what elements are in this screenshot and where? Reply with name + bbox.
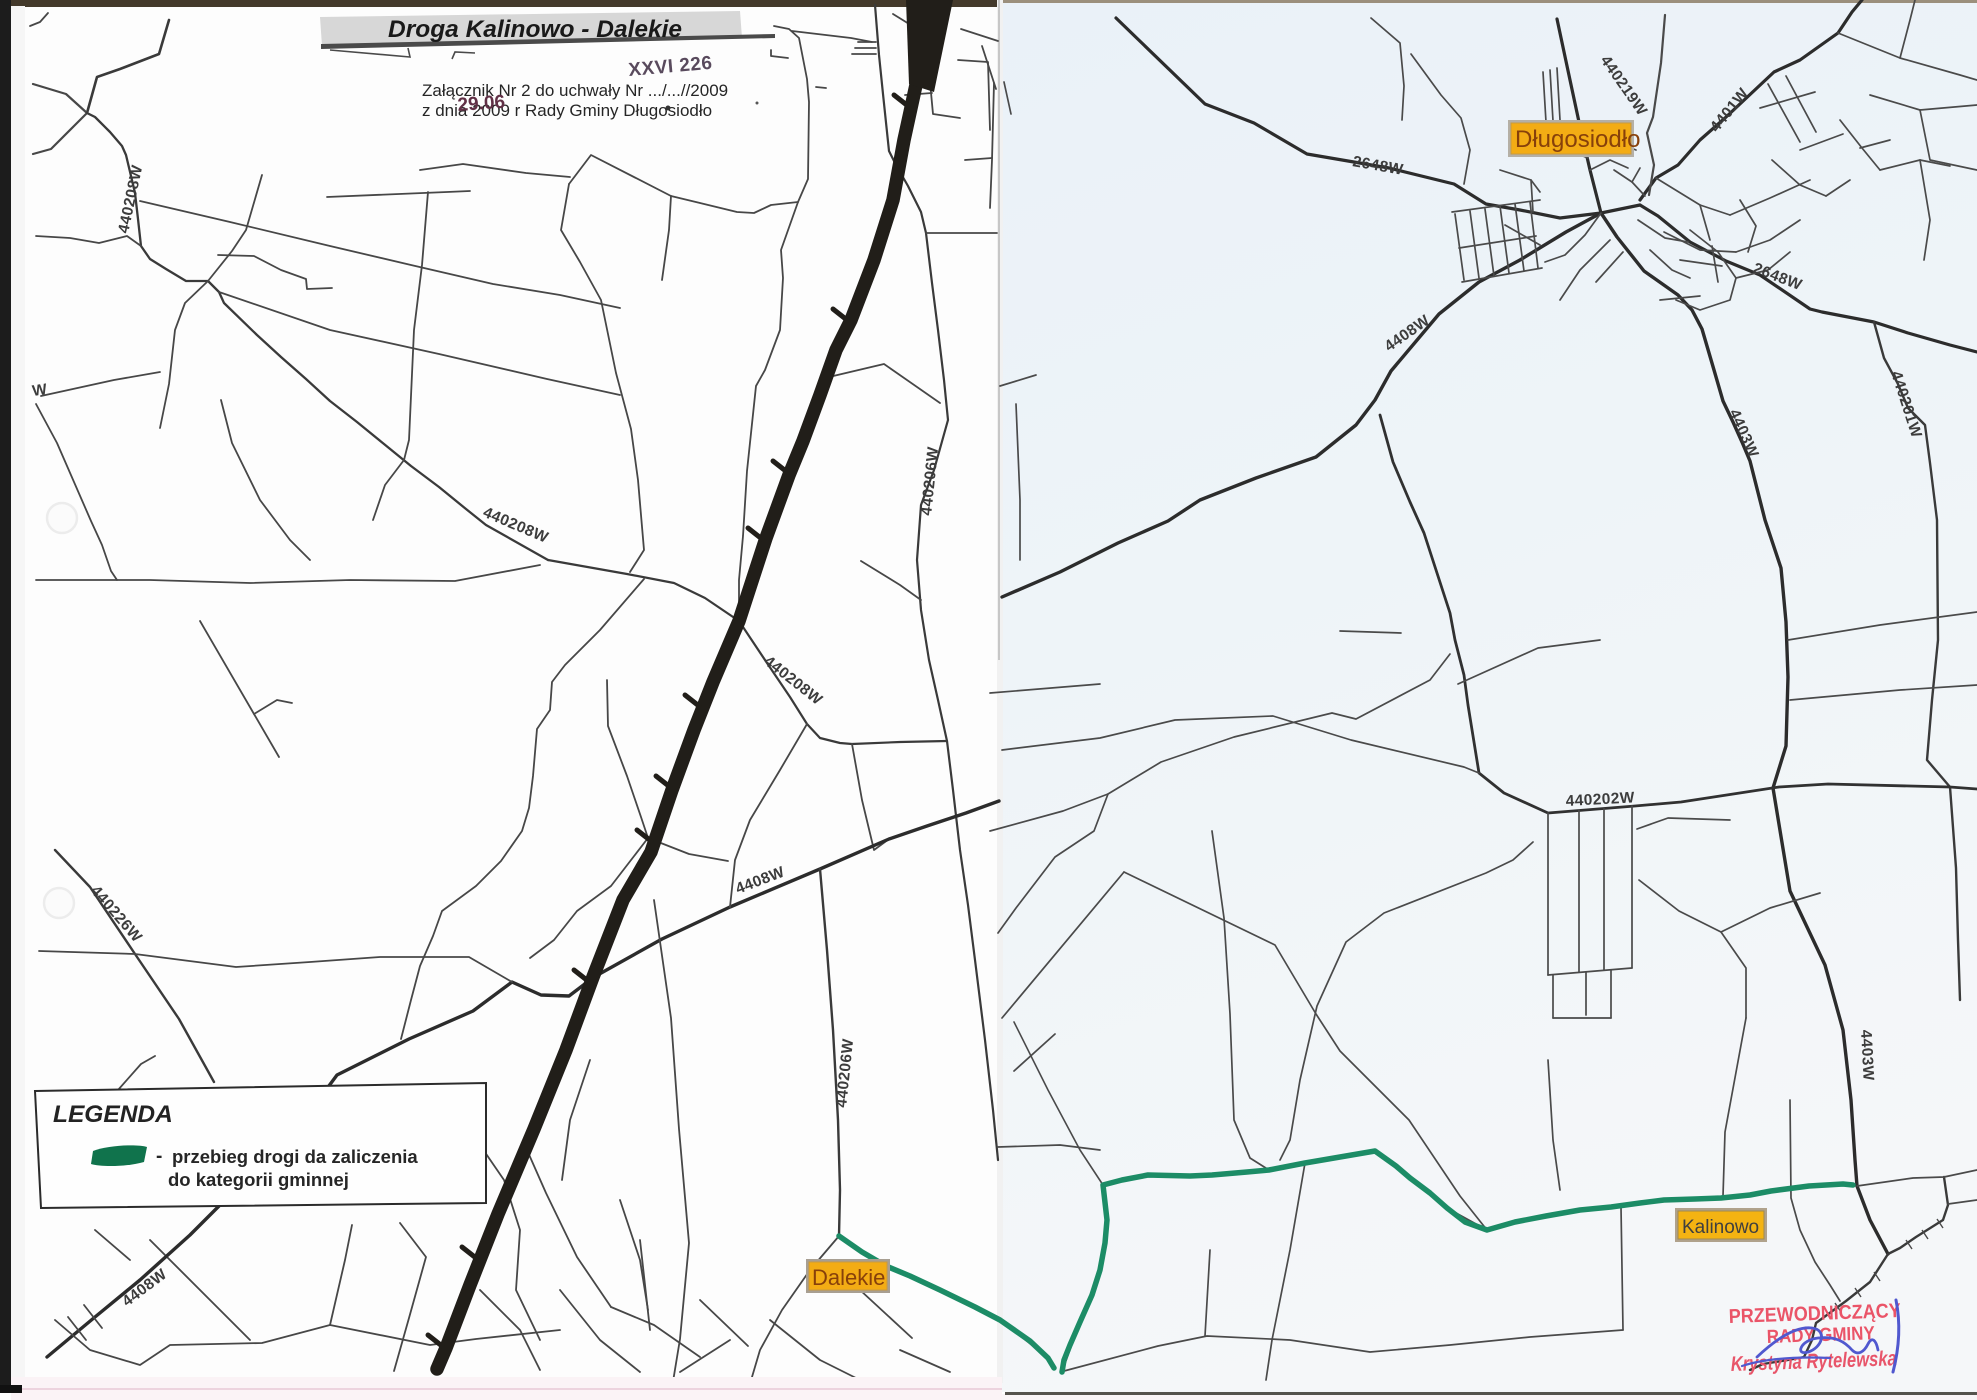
svg-text:29.06: 29.06	[457, 92, 506, 116]
svg-text:Droga Kalinowo - Dalekie: Droga Kalinowo - Dalekie	[388, 16, 682, 43]
svg-text:do kategorii gminnej: do kategorii gminnej	[168, 1169, 349, 1190]
svg-text:Długosiodło: Długosiodło	[1515, 126, 1640, 153]
svg-text:4403W: 4403W	[1857, 1029, 1877, 1081]
svg-text:przebieg drogi da zaliczenia: przebieg drogi da zaliczenia	[172, 1146, 418, 1167]
svg-text:Dalekie: Dalekie	[812, 1265, 885, 1290]
svg-text:-: -	[156, 1146, 162, 1167]
svg-text:Kalinowo: Kalinowo	[1682, 1217, 1759, 1238]
svg-text:LEGENDA: LEGENDA	[53, 1101, 173, 1128]
svg-text:W: W	[31, 381, 48, 400]
svg-text:440202W: 440202W	[1565, 789, 1635, 810]
